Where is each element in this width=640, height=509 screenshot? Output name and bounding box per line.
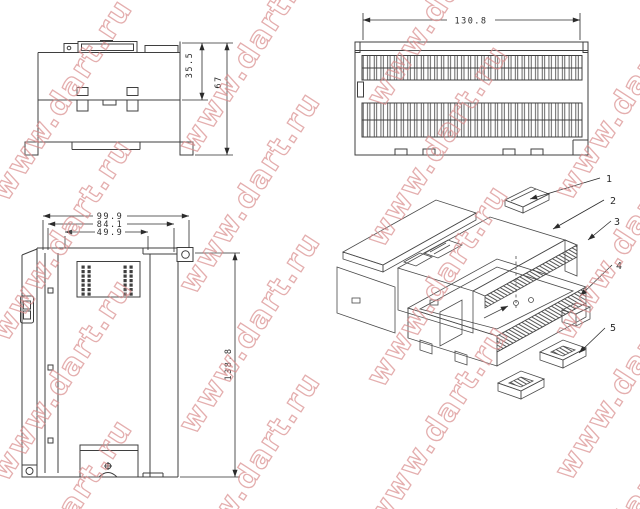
part-label-5: 5 — [610, 323, 616, 334]
part-label-1: 1 — [606, 174, 612, 185]
dim-upper-height: 35.5 — [185, 52, 195, 78]
dim-inner-width: 49.9 — [97, 228, 123, 238]
din-clip-a — [540, 340, 586, 368]
din-clip-b — [498, 371, 544, 399]
part-label-2: 2 — [610, 196, 616, 207]
drawing-page: 35.5 67 130.8 — [0, 0, 640, 509]
top-view-dimensions: 130.8 — [363, 13, 580, 40]
technical-drawing-canvas: 35.5 67 130.8 — [0, 0, 640, 509]
mounting-hole-bottom — [26, 468, 33, 475]
dim-overall-width: 130.8 — [454, 17, 487, 27]
